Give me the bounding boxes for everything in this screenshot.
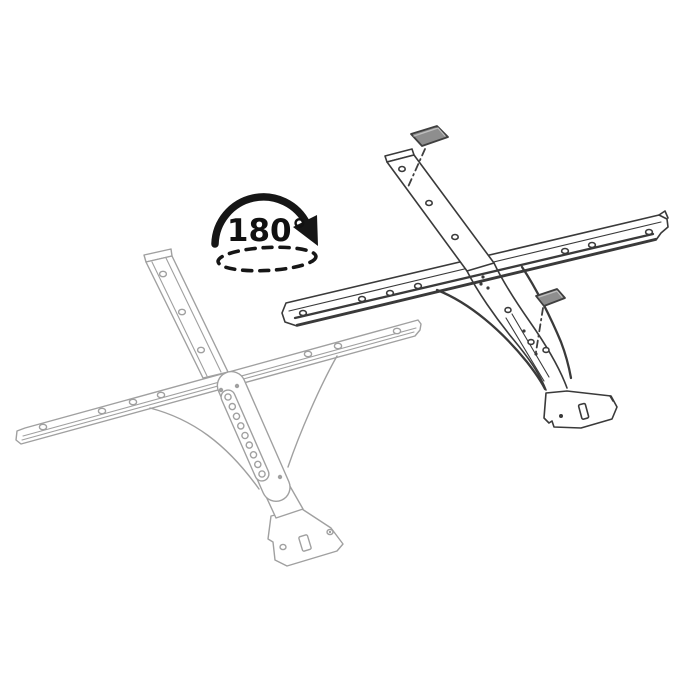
rotation-axis-ellipse — [217, 245, 316, 273]
diagram-canvas: 180° — [0, 0, 700, 700]
spacer-pads — [408, 126, 565, 352]
spacer-pad-1 — [411, 126, 448, 146]
bracket-after-upper-arm — [385, 149, 494, 271]
bracket-after-foot — [544, 391, 617, 428]
rotation-indicator: 180° — [215, 197, 318, 273]
bracket-before-upper-arm — [144, 249, 228, 378]
rotation-angle-label: 180° — [227, 213, 307, 249]
leader-line-2 — [536, 308, 543, 352]
assembly-rotation-diagram: 180° — [0, 0, 700, 700]
bracket-before-right-wing — [288, 356, 337, 467]
spacer-pad-2 — [536, 289, 565, 306]
bracket-after — [282, 149, 668, 428]
